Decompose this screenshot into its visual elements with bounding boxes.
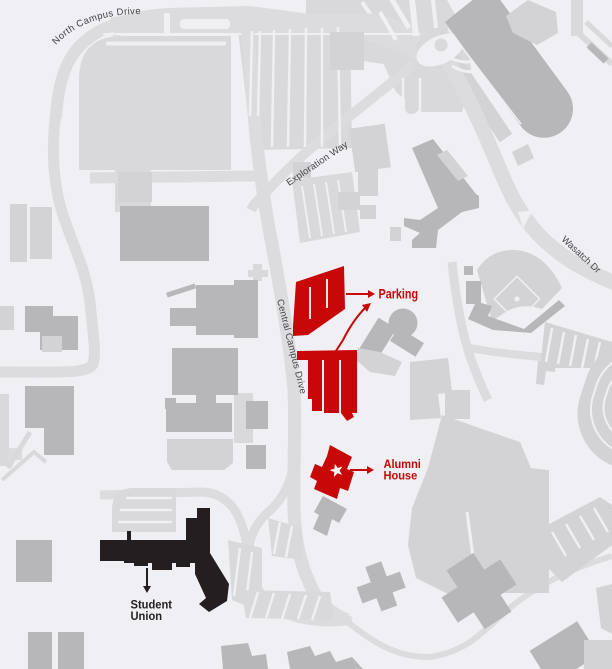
svg-text:Union: Union [131,611,163,623]
svg-text:House: House [384,470,418,482]
svg-text:Parking: Parking [379,286,419,301]
